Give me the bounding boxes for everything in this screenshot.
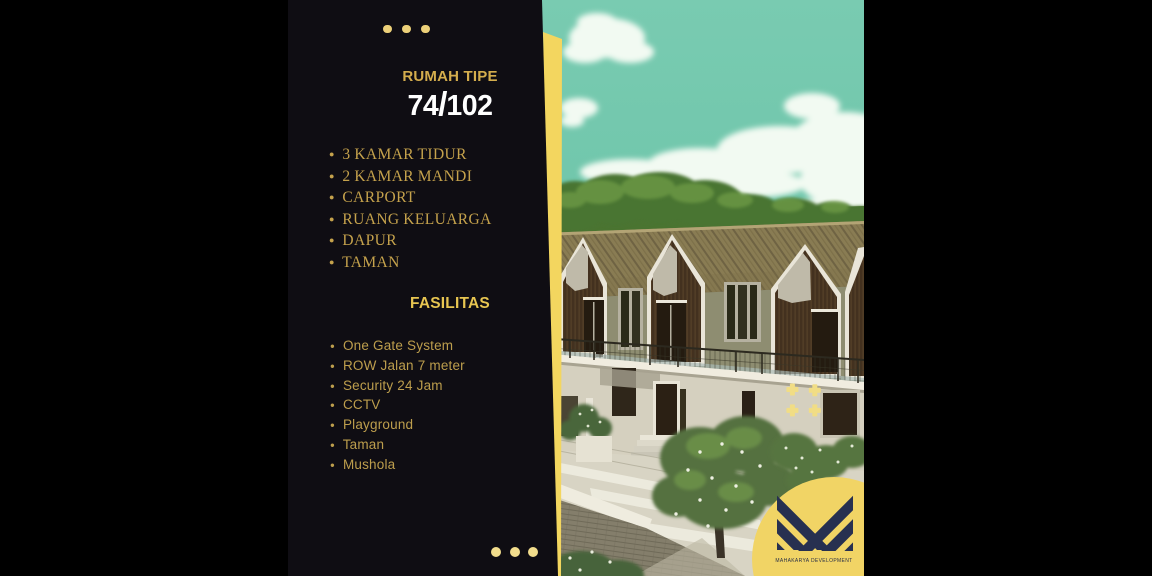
svg-text:MAHAKARYA DEVELOPMENT: MAHAKARYA DEVELOPMENT: [775, 558, 852, 564]
